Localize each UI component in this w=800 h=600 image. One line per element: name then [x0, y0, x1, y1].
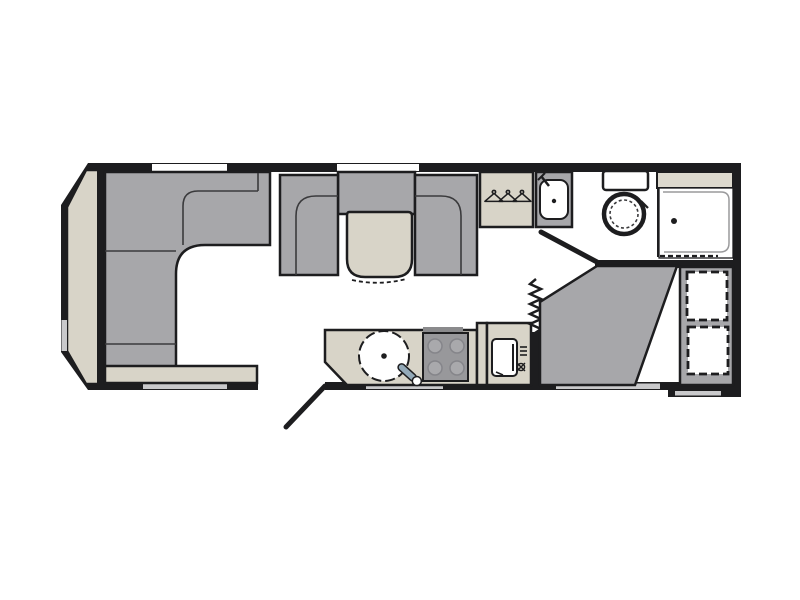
bunk-lower-icon [688, 327, 728, 374]
dinette-bench-left [280, 175, 338, 275]
entrance-doorway-opening [258, 378, 325, 392]
hob-burner [428, 339, 442, 353]
caravan-floorplan [0, 0, 800, 600]
front-storage-shelf [67, 170, 99, 384]
tall-cupboard [477, 323, 487, 385]
shower [657, 172, 733, 258]
window-dinette [337, 164, 419, 171]
window-left-front [62, 320, 68, 351]
basin-drain [552, 199, 556, 203]
toilet [603, 171, 648, 234]
bunk-upper-icon [687, 272, 727, 320]
dinette-table [347, 212, 412, 277]
toilet-cistern [603, 171, 648, 190]
floorplan-page [0, 0, 800, 600]
shower-drain [671, 218, 677, 224]
washbasin-unit [536, 172, 572, 227]
kitchen [325, 323, 531, 387]
grill-vent [423, 327, 463, 332]
hob-burner [450, 339, 464, 353]
window-lounge-bottom [143, 384, 227, 390]
window-front-lounge [152, 164, 227, 171]
sideboard [105, 366, 257, 383]
entrance-door-swing-icon [286, 386, 325, 427]
fridge-unit [487, 323, 531, 385]
bedroom-partition-wall [531, 332, 539, 385]
sink-drain [381, 353, 387, 359]
hob-burner [428, 361, 442, 375]
dinette-backrest [338, 172, 415, 214]
window-rear-corner [675, 391, 721, 396]
dinette [280, 172, 477, 283]
shower-top-shelf [657, 172, 733, 188]
shower-tray-icon [659, 188, 733, 258]
dinette-bench-right [415, 175, 477, 275]
wardrobe [480, 172, 533, 227]
hob-burner [450, 361, 464, 375]
